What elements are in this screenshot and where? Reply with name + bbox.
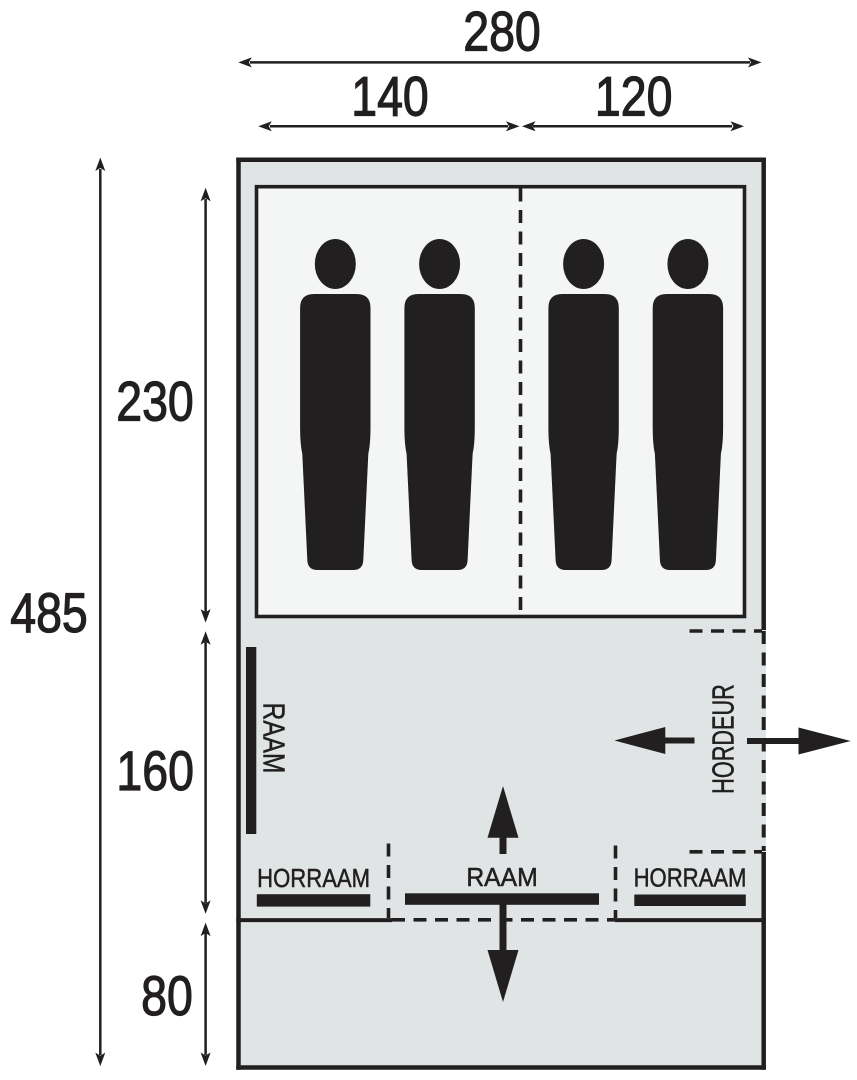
svg-text:485: 485 — [10, 581, 88, 644]
svg-text:RAAM: RAAM — [257, 703, 291, 774]
svg-text:HORRAAM: HORRAAM — [257, 864, 370, 893]
svg-text:230: 230 — [116, 369, 194, 432]
svg-text:160: 160 — [116, 739, 194, 802]
svg-text:280: 280 — [463, 0, 541, 63]
svg-text:140: 140 — [351, 64, 429, 127]
svg-text:RAAM: RAAM — [466, 863, 537, 892]
svg-text:80: 80 — [141, 964, 193, 1027]
svg-text:HORDEUR: HORDEUR — [706, 684, 741, 794]
svg-text:HORRAAM: HORRAAM — [634, 864, 747, 893]
svg-text:120: 120 — [595, 64, 673, 127]
